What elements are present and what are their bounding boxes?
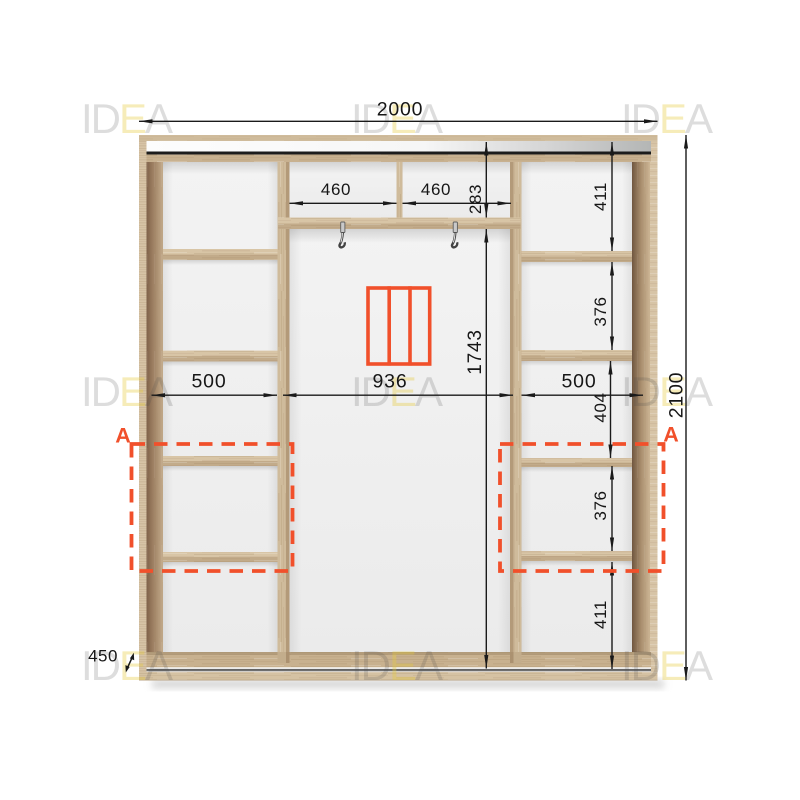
svg-text:376: 376	[591, 490, 610, 520]
svg-text:936: 936	[373, 371, 408, 393]
svg-text:IDEA: IDEA	[351, 642, 443, 689]
svg-text:A: A	[115, 424, 131, 448]
svg-text:500: 500	[192, 371, 227, 393]
svg-text:IDEA: IDEA	[81, 368, 173, 415]
svg-text:404: 404	[591, 392, 610, 422]
svg-text:460: 460	[421, 180, 451, 199]
svg-text:1743: 1743	[465, 329, 486, 374]
svg-text:IDEA: IDEA	[621, 95, 713, 142]
svg-text:411: 411	[591, 182, 610, 211]
svg-text:A: A	[663, 423, 679, 447]
svg-text:IDEA: IDEA	[621, 642, 713, 689]
svg-text:460: 460	[321, 180, 351, 199]
svg-text:376: 376	[591, 296, 610, 326]
svg-text:2000: 2000	[377, 99, 424, 121]
svg-text:411: 411	[591, 600, 610, 629]
svg-text:450: 450	[88, 647, 118, 666]
svg-text:283: 283	[466, 184, 485, 214]
svg-text:500: 500	[562, 371, 597, 393]
svg-text:2100: 2100	[666, 372, 688, 419]
svg-text:IDEA: IDEA	[81, 95, 173, 142]
